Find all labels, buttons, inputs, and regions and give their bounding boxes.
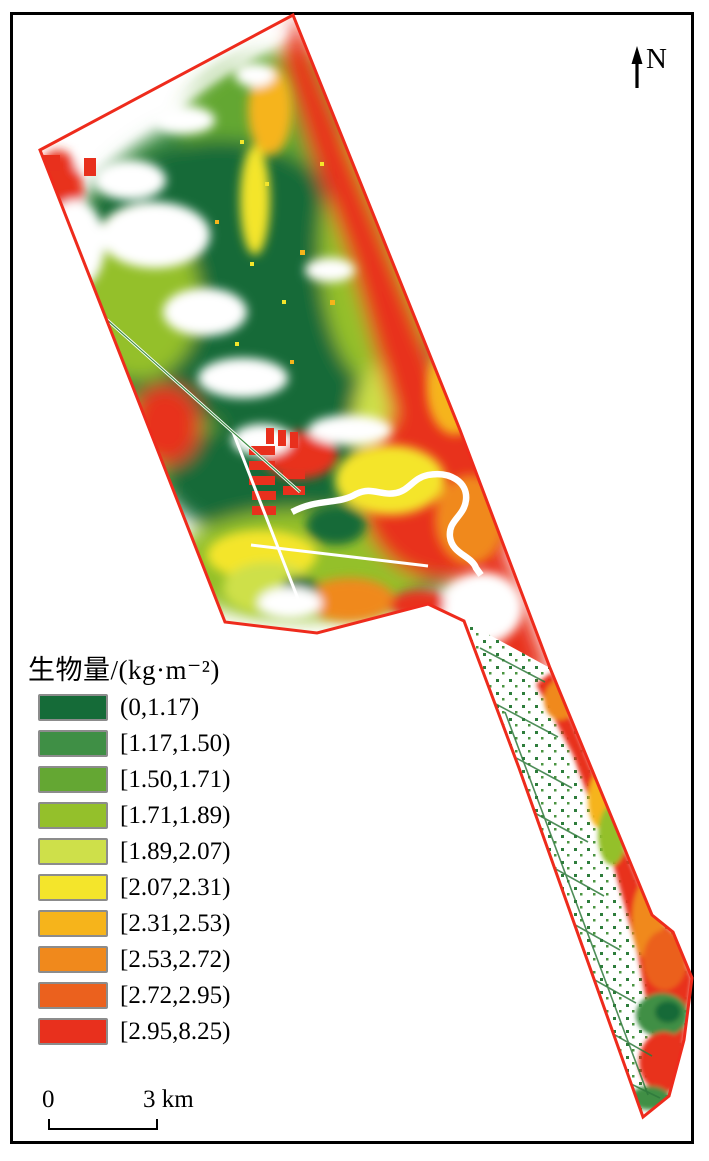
legend-label: [2.31,2.53) — [120, 910, 230, 937]
legend-label: (0,1.17) — [120, 694, 199, 721]
legend-label: [2.07,2.31) — [120, 874, 230, 901]
figure-root: { "figure": { "type": "biomass-classific… — [0, 0, 709, 1161]
legend-label: [2.95,8.25) — [120, 1018, 230, 1045]
legend-item: [1.89,2.07) — [38, 838, 308, 865]
legend-item: [2.53,2.72) — [38, 946, 308, 973]
scale-bar-zero-label: 0 — [42, 1086, 55, 1114]
scale-bar-icon — [48, 1117, 160, 1131]
legend-swatch — [38, 730, 108, 757]
legend-label: [2.53,2.72) — [120, 946, 230, 973]
legend-label: [2.72,2.95) — [120, 982, 230, 1009]
legend: 生物量/(kg·m⁻²) (0,1.17) [1.17,1.50) [1.50,… — [28, 654, 308, 1054]
legend-item: [1.71,1.89) — [38, 802, 308, 829]
legend-item: [1.50,1.71) — [38, 766, 308, 793]
legend-item: [2.95,8.25) — [38, 1018, 308, 1045]
north-indicator: N — [622, 42, 692, 98]
legend-label: [1.89,2.07) — [120, 838, 230, 865]
legend-swatch — [38, 1018, 108, 1045]
legend-label: [1.71,1.89) — [120, 802, 230, 829]
legend-swatch — [38, 874, 108, 901]
legend-swatch — [38, 766, 108, 793]
north-label: N — [646, 44, 667, 74]
legend-swatch — [38, 838, 108, 865]
legend-swatch — [38, 694, 108, 721]
legend-item: [2.07,2.31) — [38, 874, 308, 901]
scale-bar-distance-label: 3 km — [143, 1086, 194, 1114]
legend-swatch — [38, 982, 108, 1009]
legend-swatch — [38, 946, 108, 973]
legend-title: 生物量/(kg·m⁻²) — [28, 654, 308, 686]
legend-label: [1.50,1.71) — [120, 766, 230, 793]
legend-swatch — [38, 910, 108, 937]
legend-swatch — [38, 802, 108, 829]
north-arrow-icon — [622, 42, 646, 98]
scale-bar: 0 3 km — [36, 1086, 236, 1114]
legend-item: [1.17,1.50) — [38, 730, 308, 757]
legend-label: [1.17,1.50) — [120, 730, 230, 757]
legend-item: [2.31,2.53) — [38, 910, 308, 937]
legend-item: [2.72,2.95) — [38, 982, 308, 1009]
legend-item: (0,1.17) — [38, 694, 308, 721]
